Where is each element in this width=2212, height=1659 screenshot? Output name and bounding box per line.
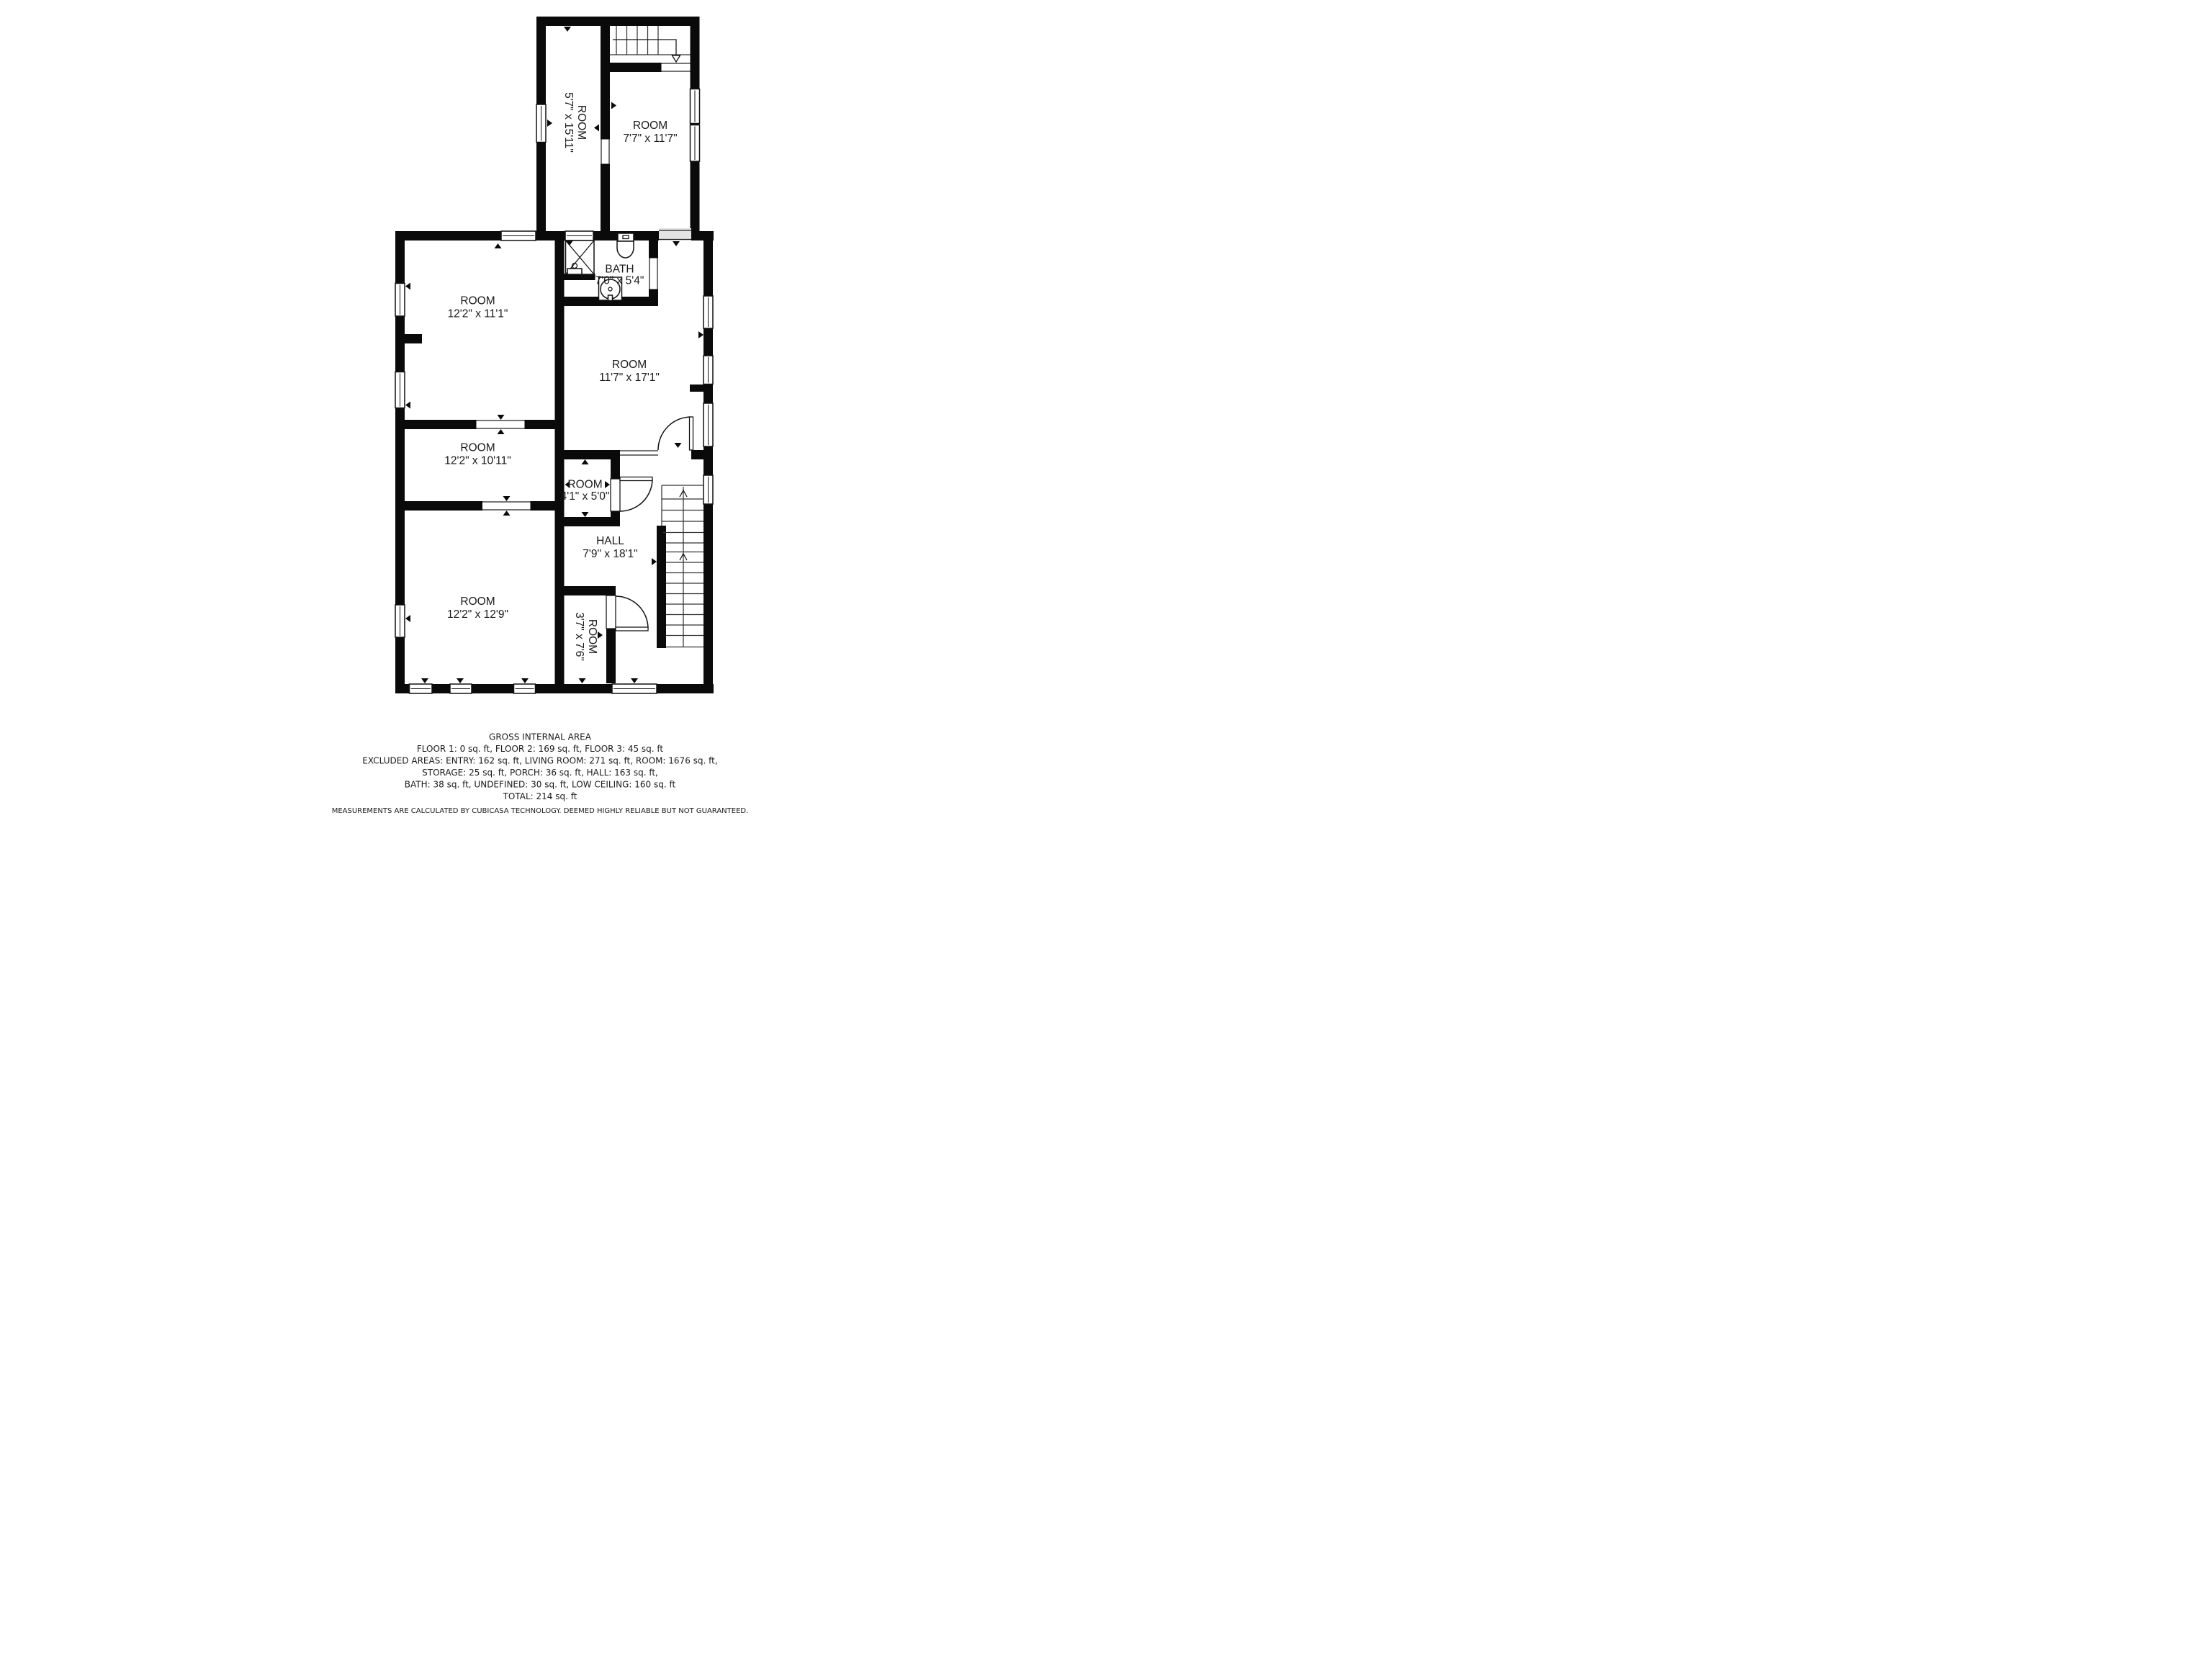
stairs-down-arrow-icon: [673, 55, 680, 62]
excluded-areas-line-2: STORAGE: 25 sq. ft, PORCH: 36 sq. ft, HA…: [422, 768, 658, 778]
room-name: HALL: [596, 535, 624, 547]
room-label-small-lower: ROOM 3'7" x 7'6": [573, 612, 598, 661]
floorplan-svg: ROOM 5'7" x 15'11" ROOM 7'7" x 11'7" BAT…: [0, 0, 1106, 829]
room-name: ROOM: [575, 105, 588, 140]
room-label-top-left: ROOM 5'7" x 15'11": [562, 92, 588, 153]
room-name: ROOM: [612, 359, 647, 371]
shower-icon: [566, 240, 595, 274]
footer-text: GROSS INTERNAL AREA FLOOR 1: 0 sq. ft, F…: [332, 732, 749, 816]
room-name: ROOM: [586, 619, 598, 654]
room-name: ROOM: [567, 479, 602, 491]
room-dims: 7'0" x 5'4": [595, 275, 644, 287]
room-name: BATH: [605, 264, 634, 276]
doors: [616, 417, 693, 631]
excluded-areas-line-3: BATH: 38 sq. ft, UNDEFINED: 30 sq. ft, L…: [405, 780, 676, 790]
toilet-icon: [617, 233, 634, 258]
gross-internal-area-title: GROSS INTERNAL AREA: [489, 732, 592, 742]
room-dims: 12'2" x 10'11": [444, 455, 511, 467]
room-dims: 7'9" x 18'1": [583, 548, 637, 560]
room-dims: 7'7" x 11'7": [623, 132, 677, 145]
room-dims: 12'2" x 12'9": [447, 608, 508, 621]
room-dims: 3'7" x 7'6": [573, 612, 585, 661]
excluded-areas-line-1: EXCLUDED AREAS: ENTRY: 162 sq. ft, LIVIN…: [362, 756, 717, 766]
room-name: ROOM: [460, 295, 495, 307]
lower-stairs: [662, 485, 703, 647]
room-dims: 5'7" x 15'11": [562, 92, 575, 153]
room-name: ROOM: [633, 120, 667, 132]
total-area-line: TOTAL: 214 sq. ft: [503, 791, 577, 801]
room-dims: 12'2" x 11'1": [448, 308, 508, 320]
upper-stairs: [610, 26, 691, 62]
room-dims: 11'7" x 17'1": [599, 372, 660, 384]
room-name: ROOM: [460, 595, 495, 608]
floor-areas-line: FLOOR 1: 0 sq. ft, FLOOR 2: 169 sq. ft, …: [417, 744, 664, 754]
room-name: ROOM: [460, 442, 495, 454]
floorplan-page: ROOM 5'7" x 15'11" ROOM 7'7" x 11'7" BAT…: [0, 0, 1106, 829]
disclaimer-line: MEASUREMENTS ARE CALCULATED BY CUBICASA …: [332, 807, 749, 815]
room-dims: 4'1" x 5'0": [561, 490, 610, 503]
